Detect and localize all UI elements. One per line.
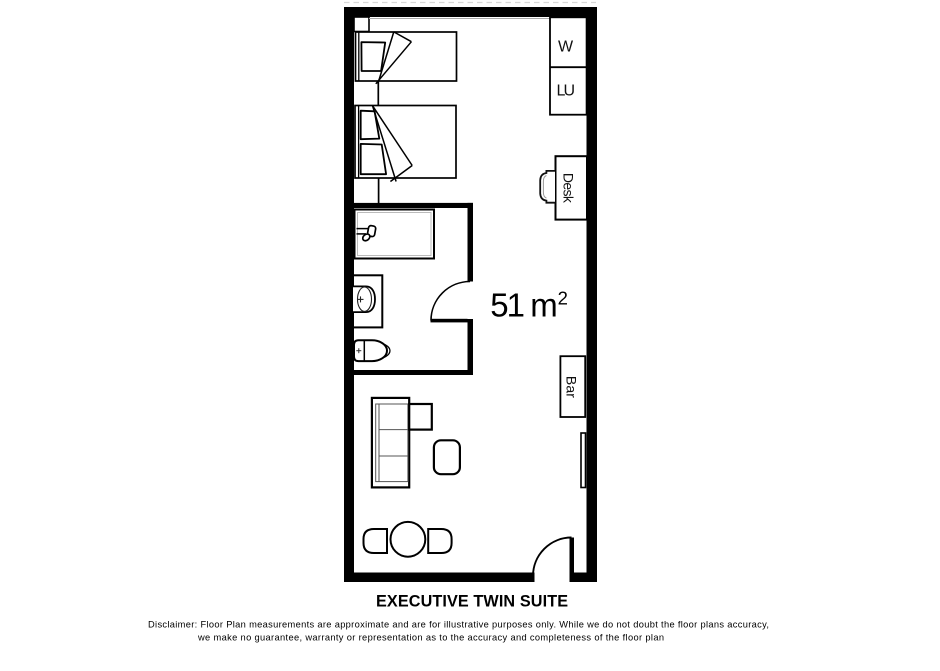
svg-text:Desk: Desk bbox=[561, 173, 577, 204]
svg-text:LU: LU bbox=[557, 83, 576, 100]
svg-text:EXECUTIVE TWIN SUITE: EXECUTIVE TWIN SUITE bbox=[376, 593, 568, 611]
svg-text:we make no guarantee, warranty: we make no guarantee, warranty or repres… bbox=[197, 632, 664, 642]
svg-text:W: W bbox=[558, 38, 574, 55]
svg-text:51 m: 51 m bbox=[490, 287, 557, 324]
svg-text:Bar: Bar bbox=[563, 376, 579, 398]
svg-text:Disclaimer: Floor Plan measure: Disclaimer: Floor Plan measurements are … bbox=[148, 620, 769, 630]
svg-text:2: 2 bbox=[558, 288, 568, 309]
